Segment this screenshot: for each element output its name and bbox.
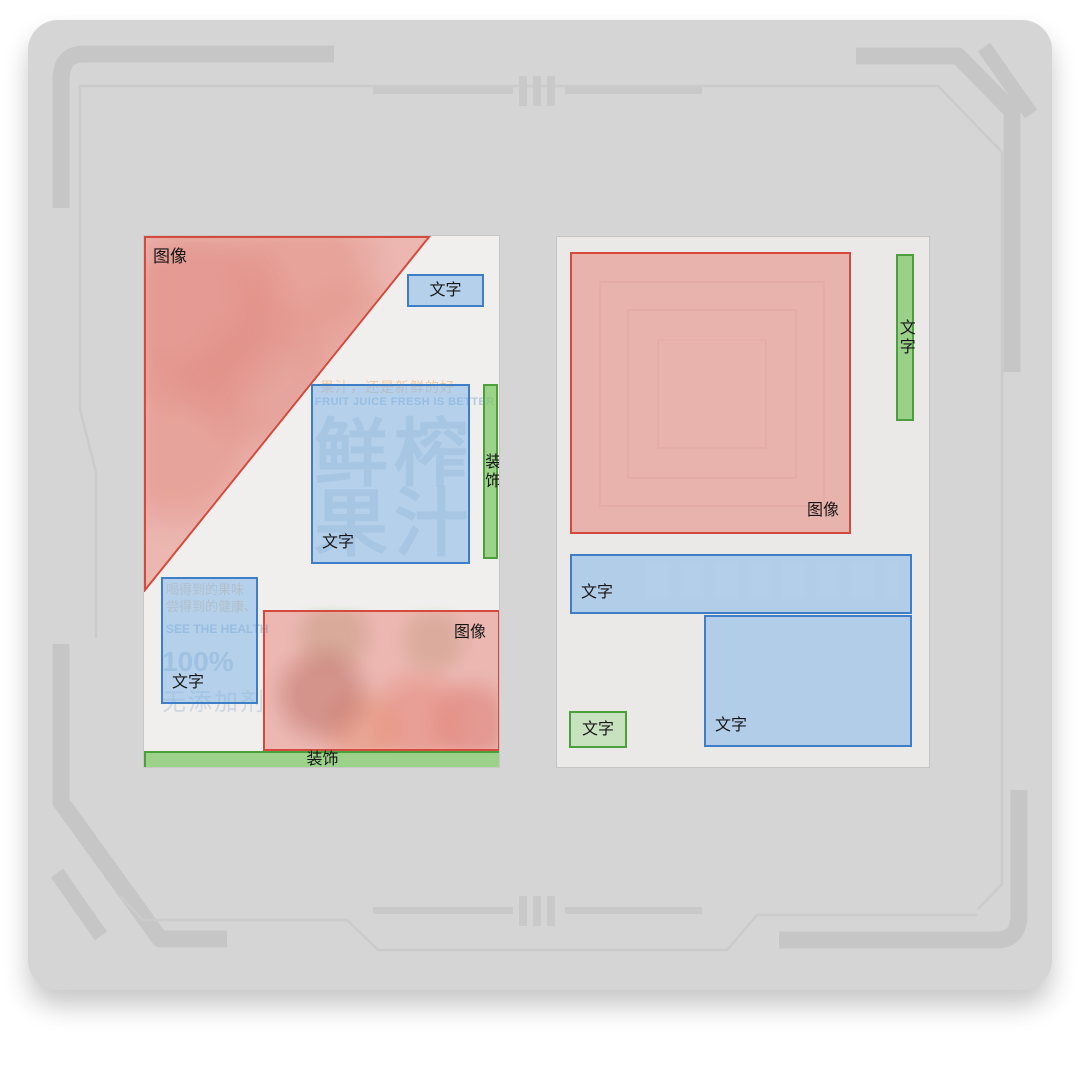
region-label: 文字: [172, 674, 204, 692]
region-label: 文字: [715, 717, 747, 735]
region-text[interactable]: 文字: [161, 577, 258, 704]
region-label: 文字: [322, 534, 354, 552]
region-label: 图像: [807, 502, 839, 520]
region-decoration[interactable]: 装饰: [483, 384, 498, 559]
region-text[interactable]: 文字: [570, 554, 912, 614]
region-image[interactable]: 图像: [570, 252, 851, 534]
region-text[interactable]: 文字: [704, 615, 912, 747]
region-text[interactable]: 文字: [311, 384, 470, 564]
region-label: 图像: [153, 248, 187, 267]
poster-left: 果汁，还是新鲜的好FRUIT JUICE FRESH IS BETTER鲜榨果汁…: [143, 235, 500, 768]
region-decoration[interactable]: 文字: [569, 711, 627, 748]
region-label: 图像: [454, 624, 486, 642]
region-label: 文字: [896, 319, 914, 357]
region-label: 装饰: [482, 453, 500, 491]
region-label: 文字: [582, 721, 614, 739]
region-label: 文字: [581, 584, 613, 602]
region-text[interactable]: 文字: [407, 274, 484, 307]
region-decoration[interactable]: 文字: [896, 254, 914, 421]
region-decoration[interactable]: 装饰: [144, 751, 500, 768]
region-image[interactable]: 图像: [263, 610, 500, 751]
poster-right: 图像文字文字文字文字: [556, 236, 930, 768]
annotation-canvas: 果汁，还是新鲜的好FRUIT JUICE FRESH IS BETTER鲜榨果汁…: [0, 0, 1080, 1080]
region-label: 装饰: [306, 751, 338, 768]
region-label: 文字: [429, 282, 461, 300]
